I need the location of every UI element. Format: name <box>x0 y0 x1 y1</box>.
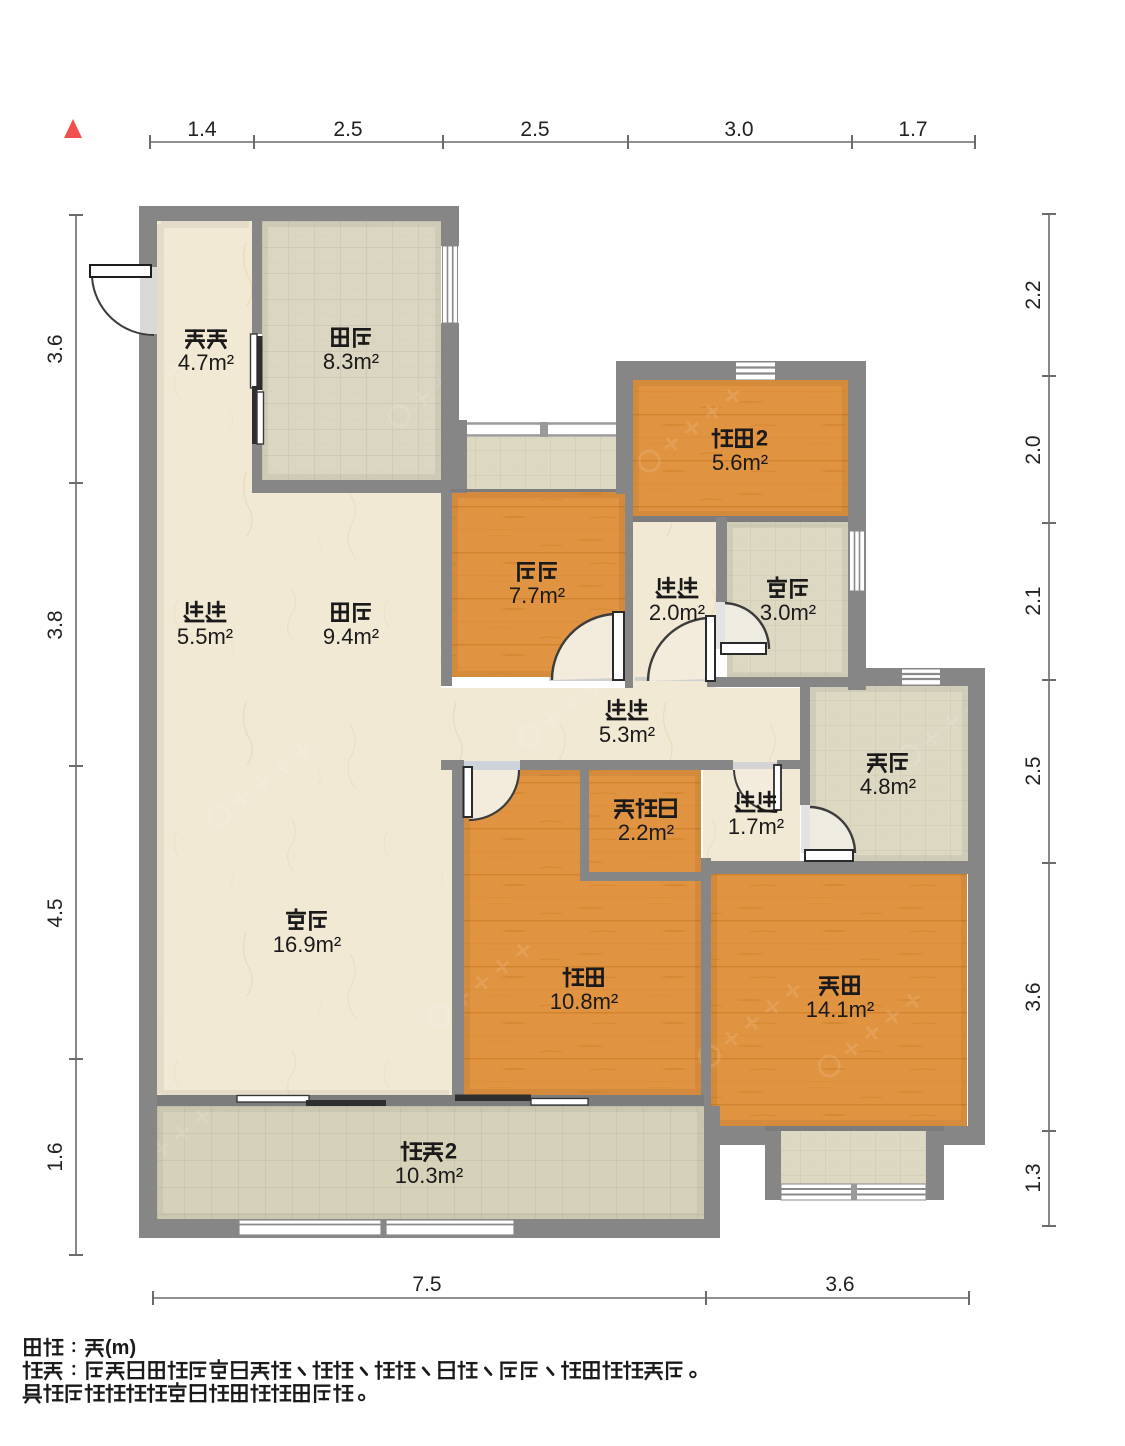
svg-text:3.6: 3.6 <box>825 1273 854 1296</box>
svg-text:5.6m²: 5.6m² <box>712 450 768 475</box>
svg-text:3.6: 3.6 <box>44 334 67 363</box>
svg-text:9.4m²: 9.4m² <box>323 624 379 649</box>
svg-text:2.0m²: 2.0m² <box>649 600 705 625</box>
svg-text:2.2m²: 2.2m² <box>618 820 674 845</box>
svg-text:5.5m²: 5.5m² <box>177 624 233 649</box>
svg-text:2.1: 2.1 <box>1022 586 1045 615</box>
svg-text:10.8m²: 10.8m² <box>550 989 618 1014</box>
svg-text:3.8: 3.8 <box>44 610 67 639</box>
svg-text:2.5: 2.5 <box>333 118 362 141</box>
svg-text:2.5: 2.5 <box>1022 756 1045 785</box>
svg-text:7.5: 7.5 <box>412 1273 441 1296</box>
svg-text:16.9m²: 16.9m² <box>273 932 341 957</box>
svg-text:5.3m²: 5.3m² <box>599 722 655 747</box>
svg-text:2: 2 <box>445 1139 457 1164</box>
svg-text:3.0m²: 3.0m² <box>760 600 816 625</box>
svg-text:1.7m²: 1.7m² <box>728 814 784 839</box>
svg-text:1.6: 1.6 <box>44 1142 67 1171</box>
svg-text:7.7m²: 7.7m² <box>509 583 565 608</box>
svg-text:8.3m²: 8.3m² <box>323 349 379 374</box>
svg-text:4.5: 4.5 <box>44 898 67 927</box>
svg-text:3.6: 3.6 <box>1022 982 1045 1011</box>
svg-text:14.1m²: 14.1m² <box>806 997 874 1022</box>
svg-text:1.7: 1.7 <box>898 118 927 141</box>
svg-text:10.3m²: 10.3m² <box>395 1163 463 1188</box>
svg-text:(m): (m) <box>105 1337 136 1359</box>
svg-text:1.3: 1.3 <box>1022 1163 1045 1192</box>
svg-text:2.5: 2.5 <box>520 118 549 141</box>
svg-text:4.8m²: 4.8m² <box>860 774 916 799</box>
svg-text:2.0: 2.0 <box>1022 435 1045 464</box>
svg-text:1.4: 1.4 <box>187 118 217 141</box>
svg-text:3.0: 3.0 <box>724 118 753 141</box>
svg-text:2: 2 <box>756 426 768 451</box>
svg-text:2.2: 2.2 <box>1022 280 1045 309</box>
svg-text:4.7m²: 4.7m² <box>178 350 234 375</box>
